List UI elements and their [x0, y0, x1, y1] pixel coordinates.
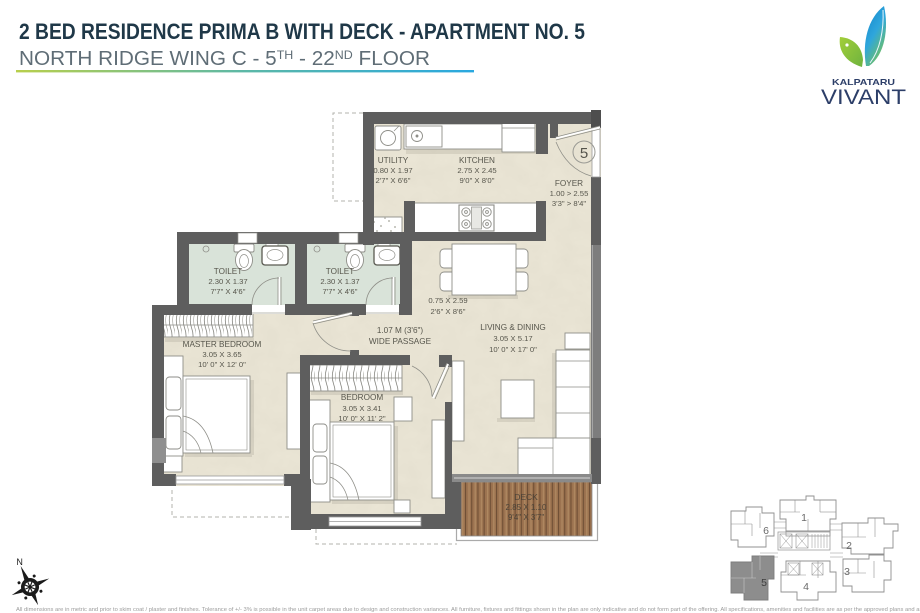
svg-text:10' 0" X 17' 0": 10' 0" X 17' 0" — [489, 345, 537, 354]
svg-text:9'0" X 8'0": 9'0" X 8'0" — [460, 176, 495, 185]
svg-text:N: N — [16, 557, 23, 567]
svg-text:TOILET: TOILET — [214, 267, 243, 276]
svg-text:2 BED RESIDENCE PRIMA B WITH D: 2 BED RESIDENCE PRIMA B WITH DECK - APAR… — [19, 19, 585, 44]
svg-text:5: 5 — [580, 145, 588, 162]
svg-text:0.75 X 2.59: 0.75 X 2.59 — [428, 296, 467, 305]
svg-text:2.30 X 1.37: 2.30 X 1.37 — [208, 277, 247, 286]
svg-text:FOYER: FOYER — [555, 179, 583, 188]
svg-text:2: 2 — [846, 540, 852, 552]
svg-text:7'7" X 4'6": 7'7" X 4'6" — [323, 287, 358, 296]
svg-text:1.00 > 2.55: 1.00 > 2.55 — [550, 189, 589, 198]
svg-text:2.30 X 1.37: 2.30 X 1.37 — [320, 277, 359, 286]
svg-text:VIVANT: VIVANT — [821, 85, 906, 109]
svg-text:9'4" X 3'7": 9'4" X 3'7" — [508, 513, 544, 522]
svg-text:UTILITY: UTILITY — [378, 156, 409, 165]
svg-text:0.80 X 1.97: 0.80 X 1.97 — [373, 166, 412, 175]
svg-text:5: 5 — [761, 577, 767, 589]
svg-text:KITCHEN: KITCHEN — [459, 156, 495, 165]
svg-text:MASTER BEDROOM: MASTER BEDROOM — [183, 340, 262, 349]
svg-text:2'6" X 8'6": 2'6" X 8'6" — [431, 307, 466, 316]
svg-text:3.05 X 3.65: 3.05 X 3.65 — [202, 350, 241, 359]
svg-text:6: 6 — [763, 525, 769, 537]
svg-text:BEDROOM: BEDROOM — [341, 393, 383, 402]
svg-text:1.07 M (3'6"): 1.07 M (3'6") — [377, 326, 424, 335]
svg-text:7'7" X 4'6": 7'7" X 4'6" — [211, 287, 246, 296]
svg-text:3: 3 — [844, 566, 850, 578]
svg-text:3.05 X 3.41: 3.05 X 3.41 — [342, 404, 381, 413]
svg-text:1: 1 — [801, 512, 807, 524]
svg-text:LIVING & DINING: LIVING & DINING — [480, 323, 546, 332]
svg-text:2.85 X 1.10: 2.85 X 1.10 — [506, 503, 547, 512]
svg-text:2'7" X 6'6": 2'7" X 6'6" — [376, 176, 411, 185]
svg-text:3'3" > 8'4": 3'3" > 8'4" — [552, 199, 587, 208]
svg-text:10' 0" X 12' 0": 10' 0" X 12' 0" — [198, 360, 246, 369]
svg-text:WIDE PASSAGE: WIDE PASSAGE — [369, 337, 432, 346]
svg-text:NORTH RIDGE WING C - 5TH - 22N: NORTH RIDGE WING C - 5TH - 22ND FLOOR — [19, 48, 430, 70]
svg-text:DECK: DECK — [514, 492, 538, 502]
svg-text:TOILET: TOILET — [326, 267, 355, 276]
svg-text:All dimensions are in metric a: All dimensions are in metric and prior t… — [16, 607, 920, 613]
svg-text:3.05 X 5.17: 3.05 X 5.17 — [493, 334, 532, 343]
svg-text:10' 0" X 11' 2": 10' 0" X 11' 2" — [338, 414, 385, 423]
svg-text:4: 4 — [803, 581, 809, 593]
svg-text:2.75 X 2.45: 2.75 X 2.45 — [457, 166, 496, 175]
